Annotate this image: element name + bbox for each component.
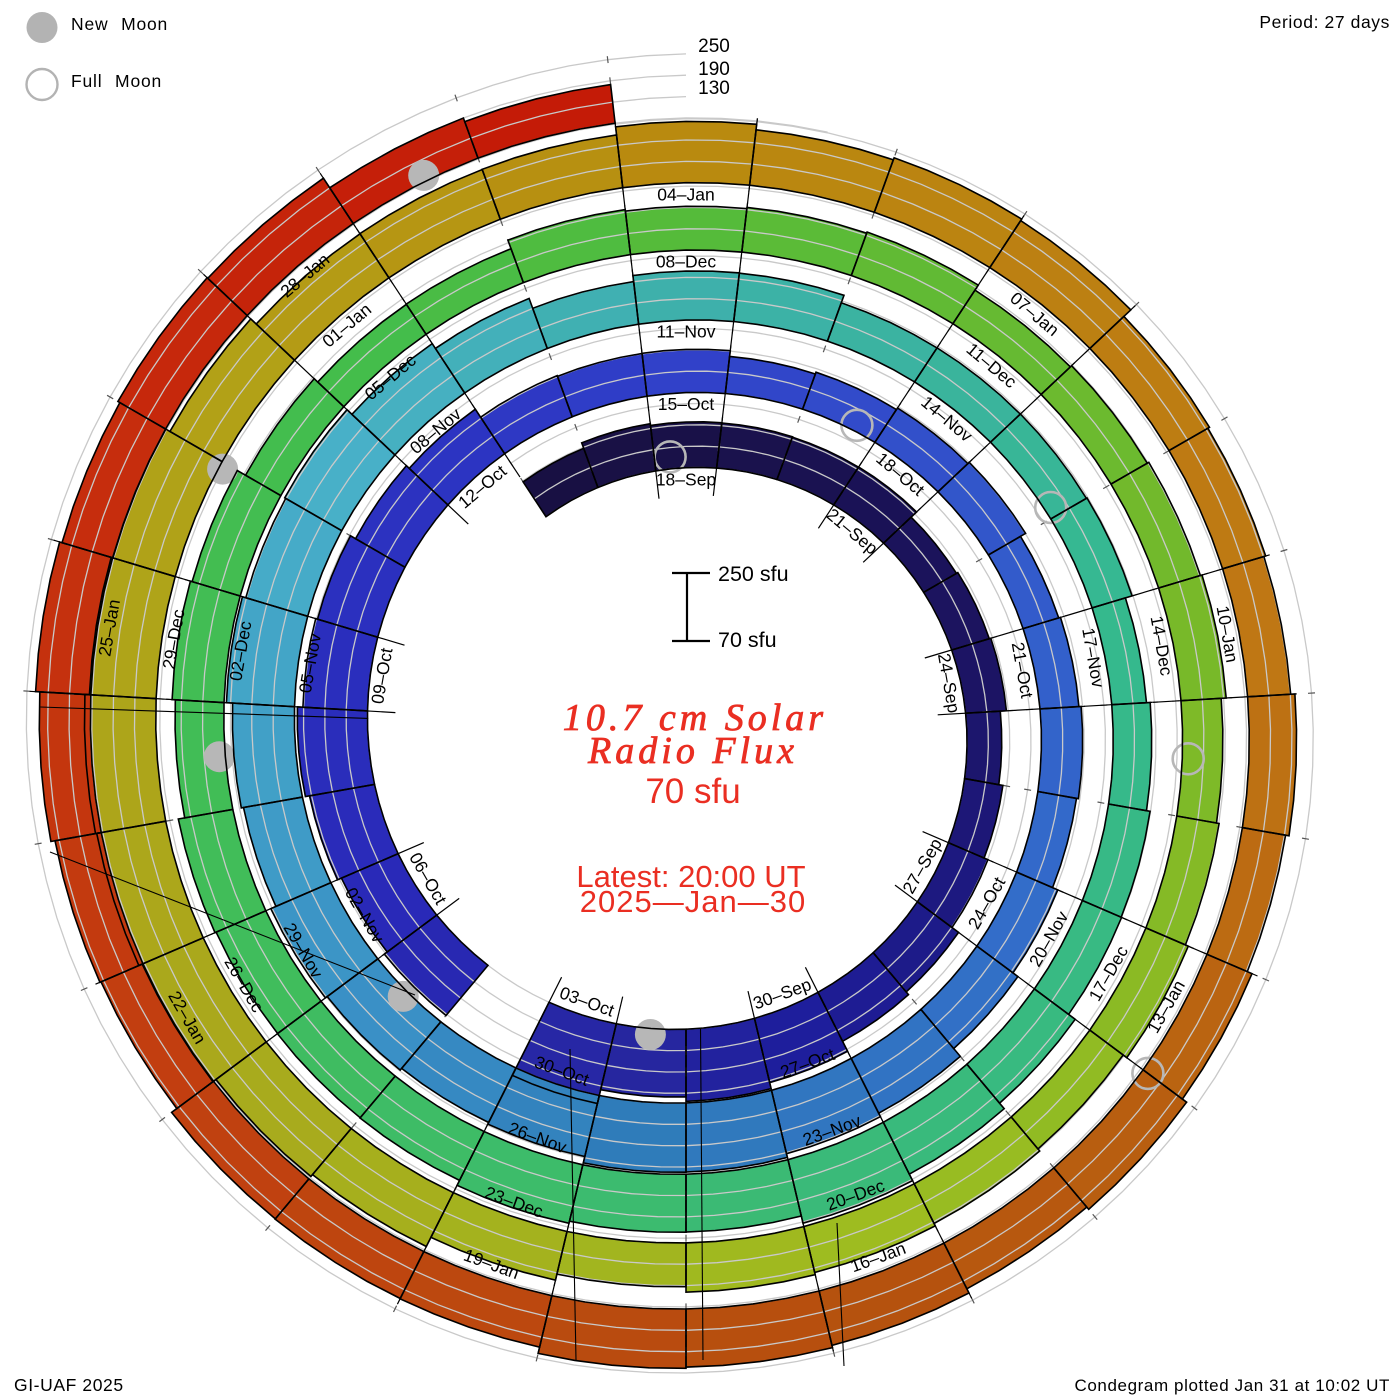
- svg-text:70 sfu: 70 sfu: [718, 628, 777, 652]
- svg-text:15–Oct: 15–Oct: [658, 394, 715, 414]
- svg-text:11–Nov: 11–Nov: [656, 322, 715, 342]
- svg-text:Full Moon: Full Moon: [71, 71, 162, 91]
- svg-text:130: 130: [698, 78, 730, 99]
- svg-text:250 sfu: 250 sfu: [718, 562, 789, 586]
- svg-text:04–Jan: 04–Jan: [657, 184, 714, 204]
- svg-text:70 sfu: 70 sfu: [645, 772, 740, 811]
- svg-text:190: 190: [698, 59, 730, 80]
- svg-text:250: 250: [698, 36, 730, 57]
- svg-text:Radio Flux: Radio Flux: [587, 730, 798, 772]
- svg-text:GI-UAF 2025: GI-UAF 2025: [14, 1375, 124, 1395]
- svg-text:New Moon: New Moon: [71, 14, 168, 34]
- svg-text:18–Sep: 18–Sep: [656, 469, 716, 489]
- svg-text:Condegram plotted Jan 31 at 10: Condegram plotted Jan 31 at 10:02 UT: [1074, 1376, 1390, 1395]
- svg-text:Period: 27 days: Period: 27 days: [1259, 12, 1390, 32]
- svg-text:2025—Jan—30: 2025—Jan—30: [580, 884, 806, 919]
- svg-text:08–Dec: 08–Dec: [656, 252, 717, 272]
